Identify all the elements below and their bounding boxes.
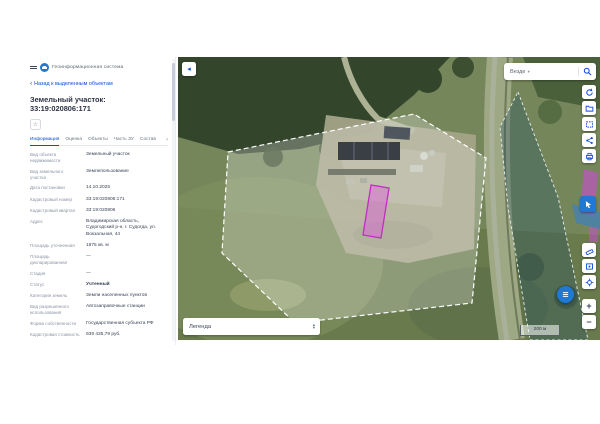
app-logo-icon [40,63,49,72]
refresh-button[interactable] [582,85,596,99]
map-toolbar [582,85,596,163]
zoom-out-button[interactable]: − [582,315,596,329]
map-scale-bar: 200 м [520,325,560,336]
attribute-label: Площадь уточненная [30,243,80,249]
attribute-row: Адрес Владимирская область, Судогодский … [30,219,168,238]
attribute-row: Статус Учтенный [30,282,168,288]
app-header: Геоинформационная система [30,63,168,72]
attribute-row: Вид объекта недвижимости Земельный участ… [30,152,168,164]
screenshot-button[interactable] [582,259,596,273]
zoom-in-label: + [586,301,591,311]
attribute-label: Дата постановки [30,185,80,191]
refresh-icon [585,88,594,97]
attribute-label: Категория земель [30,293,80,299]
object-attributes-list: Вид объекта недвижимости Земельный участ… [30,152,168,339]
sidebar-scrollbar[interactable] [172,59,175,341]
attribute-row: Кадастровая стоимость 939 435,79 руб. [30,332,168,338]
tabs-overflow-icon[interactable]: › [166,137,168,143]
back-link-label: Назад к выделенным объектам [34,81,112,87]
screenshot-icon [585,262,594,271]
attribute-value: Землепользование [86,169,168,181]
measure-button[interactable] [582,243,596,257]
attribute-row: Стадия — [30,271,168,277]
menu-icon[interactable] [30,66,37,70]
back-link[interactable]: ‹ Назад к выделенным объектам [30,81,168,88]
attribute-value: 939 435,79 руб. [86,332,168,338]
attribute-row: Дата постановки 14.10.2025 [30,185,168,191]
attribute-label: Статус [30,282,80,288]
attribute-label: Кадастровый номер [30,197,80,203]
caret-down-icon: ▾ [528,69,530,75]
page-title: Земельный участок: 33:19:020806:171 [30,95,168,113]
attribute-value-status: Учтенный [86,282,168,288]
attribute-row: Форма собственности Государственная субъ… [30,321,168,327]
attribute-label: Адрес [30,219,80,238]
tab-composition[interactable]: Состав [140,137,156,143]
identify-tool-button[interactable] [580,196,596,212]
attribute-value: — [86,254,168,266]
attribute-label: Стадия [30,271,80,277]
attribute-label: Вид земельного участка [30,169,80,181]
attribute-value: 14.10.2025 [86,185,168,191]
zoom-in-button[interactable]: + [582,299,596,313]
active-layers-button[interactable] [557,286,574,303]
zoning-patch-magenta [589,227,598,242]
divider [578,67,579,76]
legend-label: Легенда [189,324,211,330]
zoom-out-label: − [586,317,591,327]
scale-label: 200 м [534,327,547,332]
attribute-row: Кадастровый номер 33:19:020806:171 [30,197,168,203]
collapse-icon: ◂ [187,65,191,73]
list-icon [561,290,570,299]
print-icon [585,152,594,161]
map-search-bar[interactable]: Везде ▾ [504,63,596,80]
ruler-icon [585,246,594,255]
back-chevron-icon: ‹ [30,81,32,88]
tab-information[interactable]: Информация [30,137,59,146]
attribute-label: Кадастровая стоимость [30,332,80,338]
attribute-row: Кадастровый квартал 33:19:020806 [30,208,168,214]
map-canvas[interactable]: ◂ Везде ▾ [178,57,600,340]
attribute-row: Площадь декларированная — [30,254,168,266]
attribute-label: Вид разрешенного использования [30,304,80,316]
attribute-value: Государственная субъекта РФ [86,321,168,327]
favorite-icon: ☆ [33,121,38,128]
attribute-value: Владимирская область, Судогодский р-н, г… [86,219,168,238]
frame-icon [585,120,594,129]
app-title: Геоинформационная система [52,65,123,70]
expand-collapse-icon: ▴▾ [313,324,315,329]
attribute-value: 1875 кв. м [86,243,168,249]
search-scope-label[interactable]: Везде [510,69,526,75]
attribute-value: Земельный участок [86,152,168,164]
map-toolbar-secondary: + − [582,243,596,329]
tab-parcel-part[interactable]: Часть ЗУ [114,137,134,143]
tab-valuation[interactable]: Оценка [65,137,82,143]
share-icon [585,136,594,145]
select-area-button[interactable] [582,117,596,131]
cursor-icon [584,200,593,209]
tab-objects[interactable]: Объекты [88,137,108,143]
search-icon[interactable] [583,67,592,76]
attribute-label: Площадь декларированная [30,254,80,266]
attribute-label: Форма собственности [30,321,80,327]
layers-folder-button[interactable] [582,101,596,115]
attribute-value: Земли населенных пунктов [86,293,168,299]
sidebar-collapse-button[interactable]: ◂ [182,62,196,76]
attribute-value: — [86,271,168,277]
attribute-row: Вид разрешенного использования Автозапра… [30,304,168,316]
app-window: Геоинформационная система ‹ Назад к выде… [0,0,600,424]
attribute-value: 33:19:020806:171 [86,197,168,203]
folder-icon [585,104,594,113]
geolocate-button[interactable] [582,275,596,289]
favorite-button[interactable]: ☆ [30,119,41,130]
geolocate-icon [585,278,594,287]
object-card-sidebar: Геоинформационная система ‹ Назад к выде… [28,57,176,345]
attribute-row: Категория земель Земли населенных пункто… [30,293,168,299]
attribute-value: Автозаправочные станции [86,304,168,316]
object-card-tabs: Информация Оценка Объекты Часть ЗУ Соста… [30,137,168,147]
attribute-row: Вид земельного участка Землепользование [30,169,168,181]
attribute-value: 33:19:020806 [86,208,168,214]
share-button[interactable] [582,133,596,147]
satellite-basemap [178,57,600,340]
attribute-row: Площадь уточненная 1875 кв. м [30,243,168,249]
attribute-label: Вид объекта недвижимости [30,152,80,164]
legend-panel-toggle[interactable]: Легенда ▴▾ [183,318,320,335]
attribute-label: Кадастровый квартал [30,208,80,214]
print-button[interactable] [582,149,596,163]
